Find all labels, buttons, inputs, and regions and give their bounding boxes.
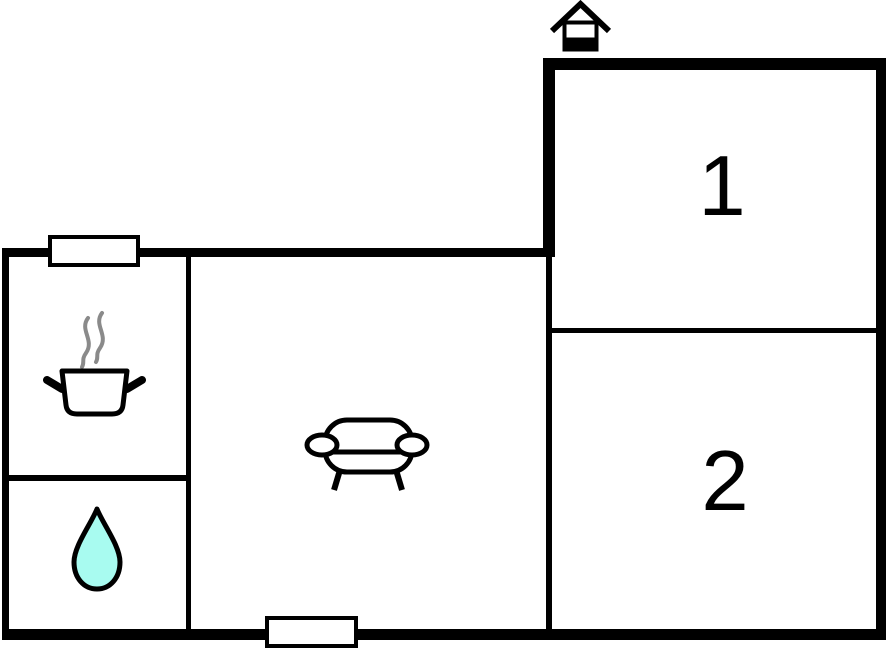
- steam-line-left: [82, 318, 89, 367]
- room-1-label: 1: [698, 139, 745, 234]
- steam-line-right: [96, 313, 103, 362]
- wall-right-room-left-upper: [543, 58, 555, 257]
- water-drop-icon: [74, 509, 120, 589]
- pot-handle-right: [127, 380, 142, 389]
- entrance-house-door: [563, 38, 599, 52]
- sofa-icon: [307, 420, 427, 490]
- wall-bottom-exterior: [2, 629, 886, 640]
- pot-handle-left: [47, 380, 62, 389]
- wall-right-room-top: [543, 58, 886, 70]
- sofa-armrest-left: [307, 435, 337, 455]
- floorplan-svg: 1 2: [0, 0, 886, 652]
- wall-living-rooms-divider: [546, 257, 552, 629]
- wall-left-exterior: [2, 248, 9, 640]
- wall-right-exterior: [876, 58, 886, 640]
- wall-kitchen-bath-divider: [9, 475, 186, 481]
- wall-kitchen-living-divider: [186, 257, 191, 629]
- floorplan: 1 2: [0, 0, 886, 652]
- steam-icon: [82, 313, 103, 367]
- window-marker-bottom-icon: [267, 618, 356, 646]
- sofa-armrest-right: [397, 435, 427, 455]
- window-marker-top-icon: [50, 237, 138, 265]
- entrance-house-icon: [552, 4, 609, 52]
- room-2-label: 2: [701, 434, 748, 529]
- cooking-pot-icon: [47, 313, 142, 414]
- wall-room1-room2-divider: [548, 328, 876, 333]
- walls: [2, 58, 886, 640]
- pot-body: [62, 371, 127, 414]
